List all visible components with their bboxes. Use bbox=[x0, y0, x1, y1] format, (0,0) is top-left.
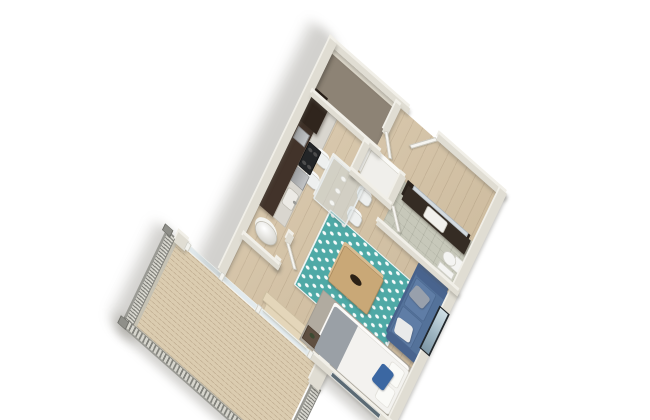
floorplan-render bbox=[0, 0, 650, 420]
